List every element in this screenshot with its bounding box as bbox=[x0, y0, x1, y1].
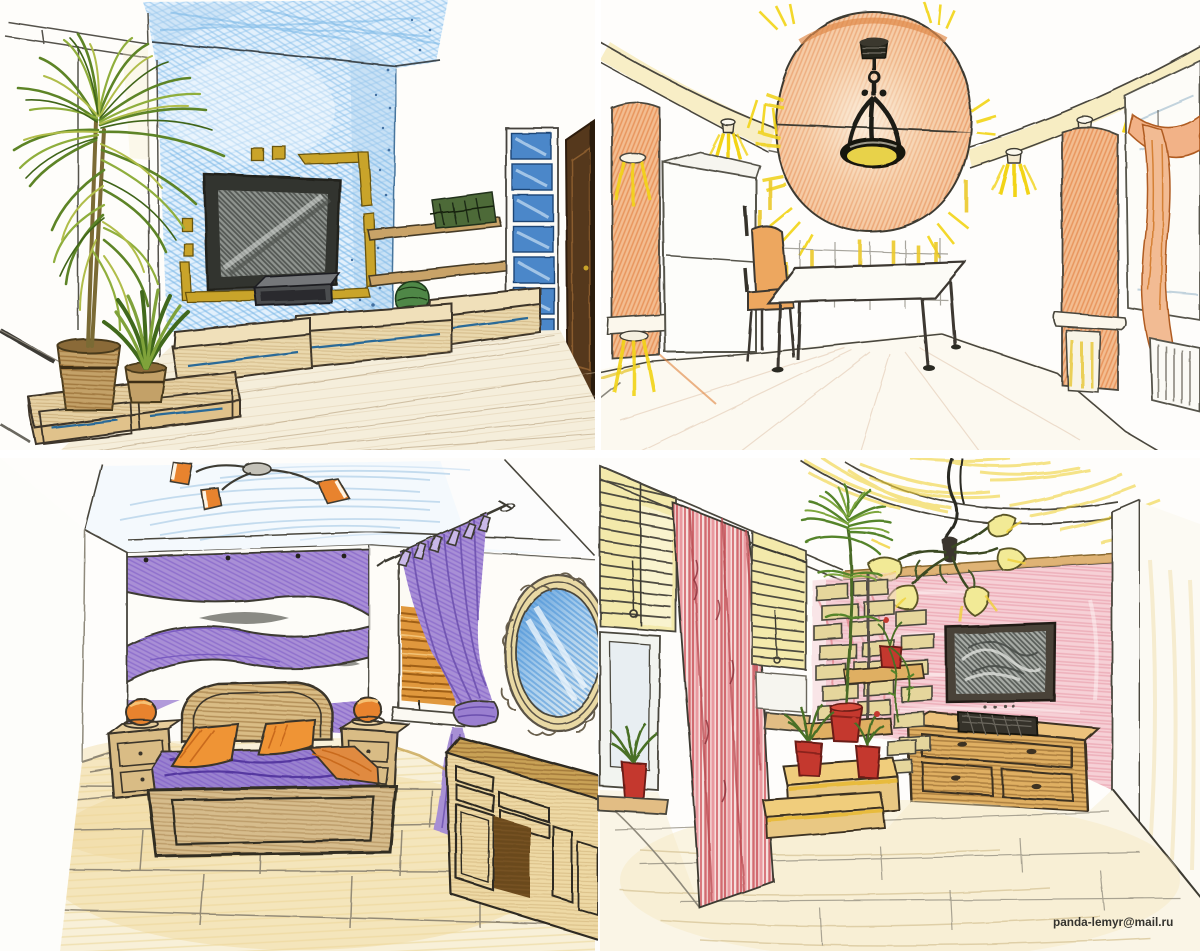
svg-text:panda-lemyr@mail.ru: panda-lemyr@mail.ru bbox=[1053, 915, 1173, 929]
